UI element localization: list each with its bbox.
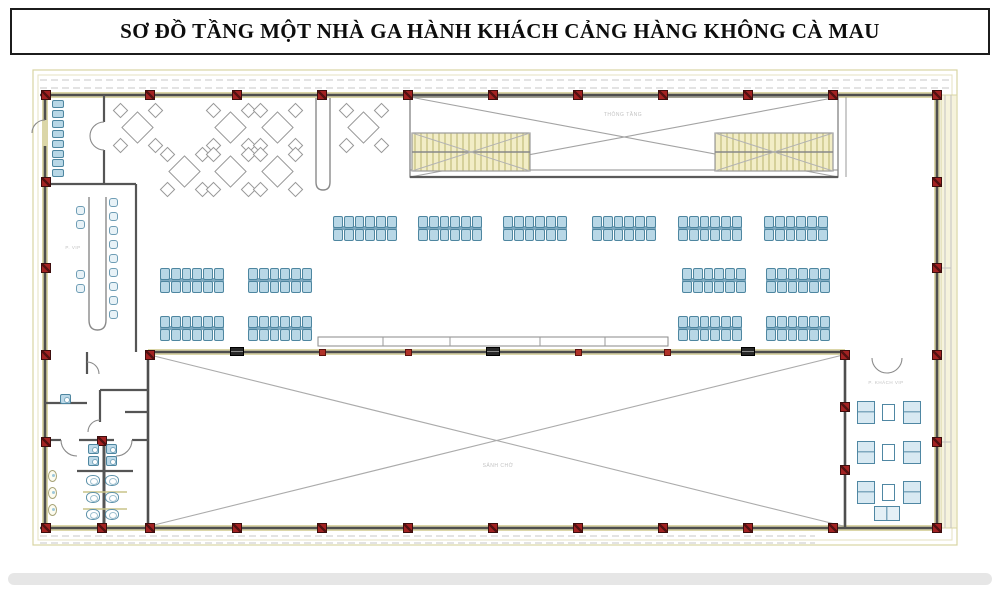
chair [288,182,304,198]
sink [60,394,71,404]
structural-column [403,90,413,100]
waiting-seat [764,216,774,228]
main-hall-label: SẢNH CHỜ [467,463,529,469]
waiting-seat [693,281,703,293]
waiting-seat [160,268,170,280]
table-top [261,111,294,144]
waiting-seat [171,329,181,341]
waiting-seat [592,229,602,241]
chair [339,138,355,154]
seat-bank [678,216,742,241]
waiting-seat [775,229,785,241]
plan-linework [0,0,1000,591]
waiting-seat [192,268,202,280]
waiting-seat [333,229,343,241]
waiting-seat [624,229,634,241]
waiting-seat [280,281,290,293]
waiting-seat [387,229,397,241]
gate-marker [741,347,755,356]
vip-sofa [903,401,921,424]
structural-column [97,523,107,533]
waiting-seat [736,281,746,293]
waiting-seat [171,316,181,328]
waiting-seat [472,229,482,241]
waiting-seat [557,216,567,228]
vip-sofa [857,481,875,504]
structural-column [573,523,583,533]
chair [288,147,304,163]
seat-bank [160,316,224,341]
structural-column [145,350,155,360]
seat-bank [678,316,742,341]
structural-column [932,523,942,533]
vip-low-table [874,506,900,521]
gate-marker [230,347,244,356]
dining-table-set [336,100,392,156]
waiting-seat [182,316,192,328]
waiting-seat [678,316,688,328]
vip-table [882,444,895,461]
vip-sofa [903,481,921,504]
vip-long-table [89,197,106,330]
waiting-seat [682,268,692,280]
structural-column [41,350,51,360]
vip-room-left-label: P. VIP [58,245,88,250]
structural-column [573,90,583,100]
waiting-seat [603,216,613,228]
waiting-seat [786,229,796,241]
structural-column [232,523,242,533]
waiting-seat [725,281,735,293]
waiting-seat [818,229,828,241]
structural-column [41,437,51,447]
waiting-seat [809,316,819,328]
waiting-seat [798,329,808,341]
toilet [105,509,119,520]
waiting-seat [820,329,830,341]
waiting-seat [700,229,710,241]
structural-column [932,177,942,187]
waiting-seat [248,268,258,280]
waiting-seat [291,281,301,293]
toilet [105,492,119,503]
waiting-seat [192,281,202,293]
vip-room-right-label: P. KHÁCH VIP [858,380,914,385]
waiting-seat [546,229,556,241]
table-chair [76,206,85,215]
structural-column [828,90,838,100]
waiting-seat [171,281,181,293]
waiting-seat [732,216,742,228]
waiting-seat [809,329,819,341]
waiting-seat [796,229,806,241]
waiting-seat [678,229,688,241]
urinal [48,504,57,516]
lounge-seat [52,110,64,118]
waiting-seat [777,268,787,280]
structural-column [41,263,51,273]
waiting-seat [302,281,312,293]
waiting-seat [820,316,830,328]
structural-column [317,523,327,533]
lounge-seat [52,120,64,128]
waiting-seat [788,281,798,293]
chair [206,182,222,198]
waiting-seat [461,229,471,241]
table-chair [109,212,118,221]
seat-bank [682,268,746,293]
waiting-seat [291,268,301,280]
structural-column [317,90,327,100]
column-marker [405,349,412,356]
waiting-seat [714,281,724,293]
waiting-seat [646,229,656,241]
waiting-seat [766,329,776,341]
waiting-seat [365,229,375,241]
seat-bank [248,316,312,341]
waiting-seat [429,216,439,228]
waiting-seat [678,216,688,228]
table-chair [109,240,118,249]
seat-bank [160,268,224,293]
table-chair [109,254,118,263]
structural-column [932,90,942,100]
chair [288,103,304,119]
seat-bank [248,268,312,293]
table-chair [109,310,118,319]
waiting-seat [270,281,280,293]
waiting-seat [182,329,192,341]
waiting-seat [192,329,202,341]
waiting-seat [710,229,720,241]
waiting-seat [376,229,386,241]
waiting-seat [732,329,742,341]
waiting-seat [440,229,450,241]
waiting-seat [714,268,724,280]
toilet [86,492,100,503]
waiting-seat [788,329,798,341]
waiting-seat [182,268,192,280]
vip-sofa [857,441,875,464]
waiting-seat [777,316,787,328]
waiting-seat [786,216,796,228]
table-chair [109,296,118,305]
lounge-seat [52,100,64,108]
waiting-seat [535,216,545,228]
waiting-seat [646,216,656,228]
structural-column [41,177,51,187]
waiting-seat [704,281,714,293]
floor-plan: THÔNG TẦNG SẢNH CHỜ P. KHÁCH VIP P. VIP [0,0,1000,591]
waiting-seat [535,229,545,241]
structural-column [932,437,942,447]
structural-column [145,523,155,533]
structural-column [41,90,51,100]
table-top [168,155,201,188]
checkin-counter [318,337,668,346]
waiting-seat [503,216,513,228]
chair [374,138,390,154]
waiting-seat [270,268,280,280]
chair [206,103,222,119]
waiting-seat [700,316,710,328]
seat-bank [764,216,828,241]
column-marker [575,349,582,356]
waiting-seat [429,229,439,241]
table-top [214,111,247,144]
floor-plan-canvas: SƠ ĐỒ TẦNG MỘT NHÀ GA HÀNH KHÁCH CẢNG HÀ… [0,0,1000,591]
chair [113,138,129,154]
vip-table [882,484,895,501]
chair [160,147,176,163]
waiting-seat [704,268,714,280]
table-chair [76,270,85,279]
waiting-seat [721,329,731,341]
waiting-seat [182,281,192,293]
structural-column [828,523,838,533]
waiting-seat [798,281,808,293]
sink [88,456,99,466]
waiting-seat [387,216,397,228]
waiting-seat [777,329,787,341]
waiting-seat [203,268,213,280]
lounge-seat [52,140,64,148]
waiting-seat [721,216,731,228]
waiting-seat [788,316,798,328]
waiting-seat [689,216,699,228]
toilet [86,509,100,520]
waiting-seat [732,229,742,241]
table-chair [109,226,118,235]
chair [160,182,176,198]
structural-column [932,350,942,360]
chair [253,103,269,119]
waiting-seat [818,216,828,228]
table-top [214,155,247,188]
sink [106,444,117,454]
waiting-seat [203,329,213,341]
sink [106,456,117,466]
structural-column [743,523,753,533]
waiting-seat [259,268,269,280]
waiting-seat [710,316,720,328]
entrance-partition [316,98,330,190]
waiting-seat [777,281,787,293]
waiting-seat [440,216,450,228]
chair [253,147,269,163]
waiting-seat [461,216,471,228]
chair [113,103,129,119]
structural-column [840,402,850,412]
urinal [48,487,57,499]
urinal [48,470,57,482]
lounge-seat [52,130,64,138]
structural-column [840,465,850,475]
waiting-seat [365,216,375,228]
waiting-seat [514,216,524,228]
waiting-seat [700,329,710,341]
waiting-seat [766,281,776,293]
waiting-seat [525,229,535,241]
waiting-seat [280,268,290,280]
waiting-seat [259,329,269,341]
seat-bank [418,216,482,241]
structural-column [743,90,753,100]
table-chair [109,198,118,207]
waiting-seat [171,268,181,280]
waiting-seat [614,229,624,241]
waiting-seat [546,216,556,228]
chair [374,103,390,119]
table-chair [109,282,118,291]
chair [148,103,164,119]
waiting-seat [355,216,365,228]
structural-column [932,263,942,273]
vip-table [882,404,895,421]
waiting-seat [689,316,699,328]
waiting-seat [248,316,258,328]
void-label: THÔNG TẦNG [593,112,653,118]
column-marker [664,349,671,356]
waiting-seat [214,268,224,280]
waiting-seat [259,281,269,293]
waiting-seat [248,281,258,293]
waiting-seat [270,316,280,328]
waiting-seat [291,329,301,341]
chair [253,182,269,198]
chair [339,103,355,119]
waiting-seat [689,329,699,341]
waiting-seat [820,268,830,280]
waiting-seat [700,216,710,228]
table-chair [76,220,85,229]
waiting-seat [764,229,774,241]
waiting-seat [603,229,613,241]
toilet [105,475,119,486]
waiting-seat [614,216,624,228]
waiting-seat [809,268,819,280]
waiting-seat [736,268,746,280]
seat-bank [333,216,397,241]
waiting-seat [160,329,170,341]
staircases [412,133,833,171]
lounge-seat [52,169,64,177]
waiting-seat [766,268,776,280]
waiting-seat [721,316,731,328]
waiting-seat [678,329,688,341]
waiting-seat [809,281,819,293]
waiting-seat [635,229,645,241]
waiting-seat [333,216,343,228]
structural-column [658,90,668,100]
waiting-seat [624,216,634,228]
lounge-seat [52,159,64,167]
waiting-seat [557,229,567,241]
structural-column [840,350,850,360]
waiting-seat [355,229,365,241]
waiting-seat [689,229,699,241]
gate-marker [486,347,500,356]
waiting-seat [503,229,513,241]
waiting-seat [725,268,735,280]
waiting-seat [344,229,354,241]
bottom-shadow-band [8,573,992,585]
waiting-seat [798,268,808,280]
structural-column [488,523,498,533]
waiting-seat [259,316,269,328]
waiting-seat [635,216,645,228]
table-top [121,111,154,144]
waiting-seat [514,229,524,241]
waiting-seat [344,216,354,228]
waiting-seat [820,281,830,293]
waiting-seat [214,316,224,328]
waiting-seat [418,216,428,228]
waiting-seat [192,316,202,328]
waiting-seat [160,281,170,293]
waiting-seat [418,229,428,241]
waiting-seat [450,229,460,241]
waiting-seat [788,268,798,280]
lounge-seat [52,150,64,158]
waiting-seat [721,229,731,241]
table-top [261,155,294,188]
waiting-seat [732,316,742,328]
waiting-seat [766,316,776,328]
waiting-seat [214,281,224,293]
waiting-seat [214,329,224,341]
structural-column [232,90,242,100]
structural-column [488,90,498,100]
waiting-seat [270,329,280,341]
table-chair [76,284,85,293]
waiting-seat [592,216,602,228]
waiting-seat [525,216,535,228]
structural-column [403,523,413,533]
structural-column [145,90,155,100]
main-hall [150,355,843,526]
waiting-seat [798,316,808,328]
waiting-seat [472,216,482,228]
waiting-seat [248,329,258,341]
seat-bank [503,216,567,241]
column-marker [319,349,326,356]
waiting-seat [280,329,290,341]
sink [88,444,99,454]
waiting-seat [376,216,386,228]
seat-bank [766,316,830,341]
dining-table-set [250,144,306,200]
waiting-seat [203,281,213,293]
structural-column [41,523,51,533]
waiting-seat [775,216,785,228]
waiting-seat [807,229,817,241]
vip-sofa [857,401,875,424]
table-chair [109,268,118,277]
waiting-seat [796,216,806,228]
waiting-seat [693,268,703,280]
chair [206,147,222,163]
waiting-seat [291,316,301,328]
waiting-seat [807,216,817,228]
structural-column [658,523,668,533]
waiting-seat [682,281,692,293]
waiting-seat [203,316,213,328]
waiting-seat [710,216,720,228]
waiting-seat [710,329,720,341]
table-top [347,111,380,144]
waiting-seat [302,329,312,341]
